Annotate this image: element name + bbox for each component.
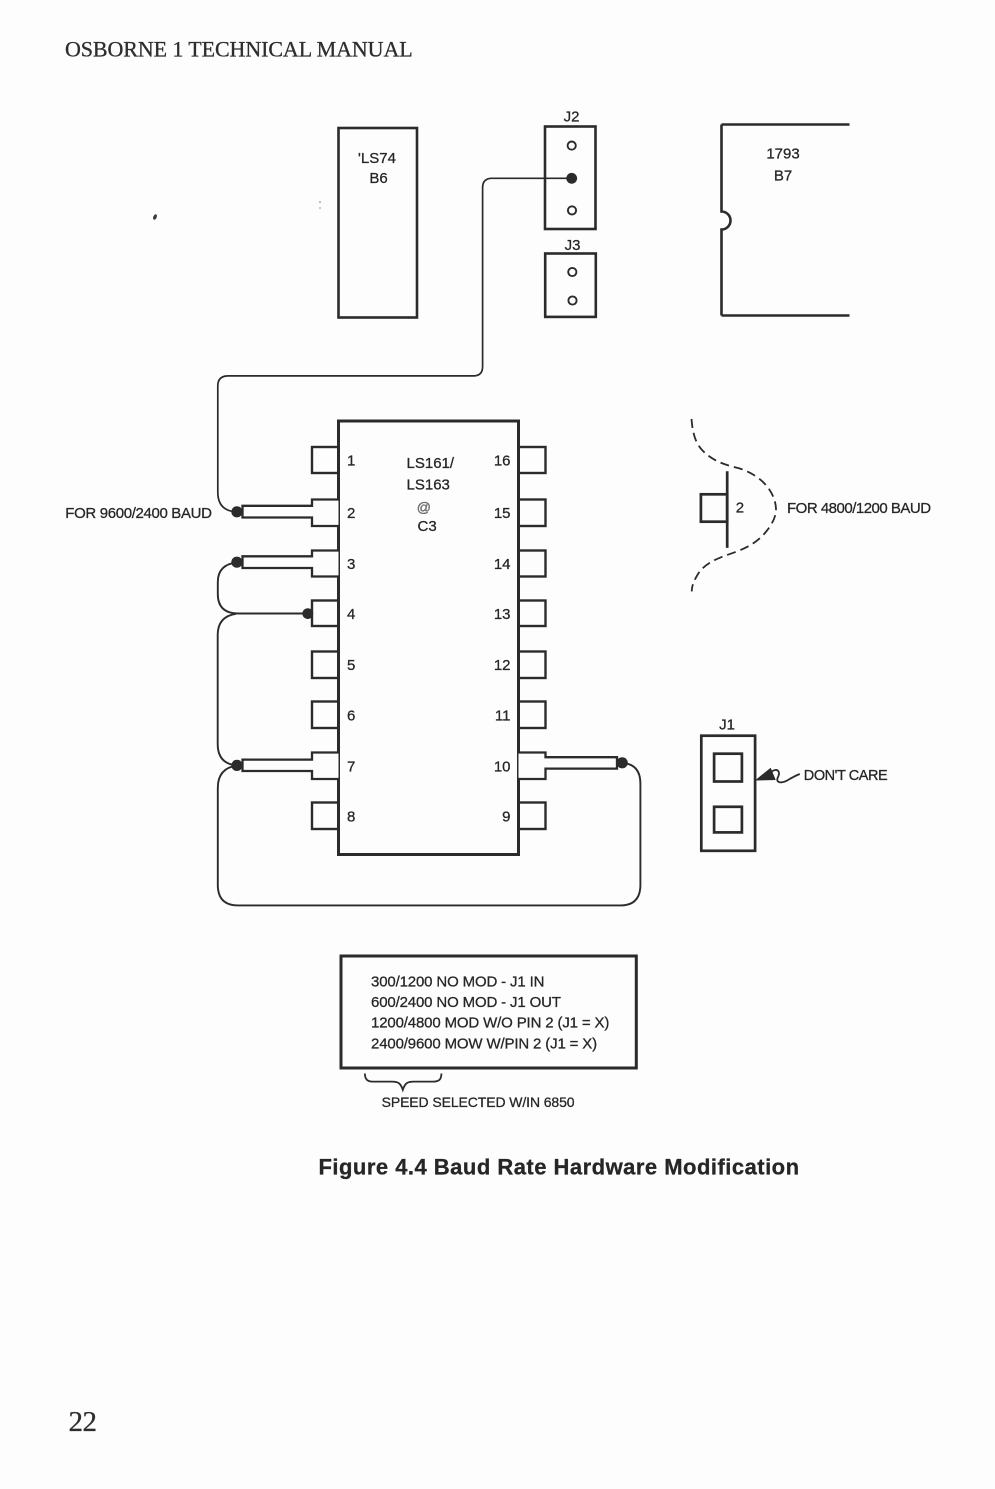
svg-text:5: 5: [347, 657, 355, 674]
svg-text:11: 11: [495, 708, 511, 725]
svg-text:7: 7: [347, 759, 355, 776]
svg-text:1200/4800 MOD W/O PIN 2 (J1 =: 1200/4800 MOD W/O PIN 2 (J1 = X): [371, 1014, 609, 1031]
svg-text:J3: J3: [565, 237, 581, 254]
svg-text:13: 13: [494, 606, 511, 623]
svg-text:300/1200 NO MOD - J1 IN: 300/1200 NO MOD - J1 IN: [371, 974, 544, 991]
svg-text:Figure 4.4 Baud Rate Hardware: Figure 4.4 Baud Rate Hardware Modificati…: [319, 1155, 800, 1180]
svg-text:DON'T CARE: DON'T CARE: [804, 768, 888, 784]
svg-text:@: @: [417, 499, 431, 515]
svg-text:SPEED SELECTED W/IN 6850: SPEED SELECTED W/IN 6850: [382, 1094, 575, 1110]
svg-text:2400/9600 MOW W/PIN 2 (J1 = X: 2400/9600 MOW W/PIN 2 (J1 = X): [371, 1035, 597, 1052]
svg-text:1793: 1793: [766, 146, 799, 163]
svg-text:'LS74: 'LS74: [358, 150, 396, 167]
svg-text:10: 10: [494, 759, 511, 776]
svg-text:3: 3: [347, 556, 355, 573]
svg-text:16: 16: [494, 453, 511, 470]
svg-text:12: 12: [494, 657, 511, 674]
svg-text:J2: J2: [564, 109, 580, 126]
svg-text:600/2400 NO MOD - J1 OUT: 600/2400 NO MOD - J1 OUT: [371, 994, 561, 1011]
svg-text:15: 15: [494, 505, 511, 522]
svg-text:B6: B6: [369, 170, 387, 187]
svg-text:C3: C3: [418, 518, 437, 535]
svg-text:LS163: LS163: [407, 476, 450, 493]
svg-text:22: 22: [69, 1406, 97, 1438]
svg-text:FOR 4800/1200 BAUD: FOR 4800/1200 BAUD: [787, 500, 931, 517]
svg-text:8: 8: [347, 809, 355, 826]
svg-text:14: 14: [494, 556, 511, 573]
svg-text:LS161/: LS161/: [407, 455, 455, 472]
svg-text:4: 4: [347, 606, 355, 623]
svg-text:FOR 9600/2400 BAUD: FOR 9600/2400 BAUD: [65, 505, 212, 522]
svg-text:9: 9: [502, 809, 510, 826]
svg-text:B7: B7: [774, 168, 792, 185]
svg-text:OSBORNE 1 TECHNICAL MANUAL: OSBORNE 1 TECHNICAL MANUAL: [65, 36, 413, 61]
svg-text:2: 2: [736, 500, 744, 517]
svg-text:2: 2: [347, 505, 355, 522]
svg-text:6: 6: [347, 708, 355, 725]
svg-text:1: 1: [347, 453, 355, 470]
svg-text:J1: J1: [719, 717, 735, 734]
